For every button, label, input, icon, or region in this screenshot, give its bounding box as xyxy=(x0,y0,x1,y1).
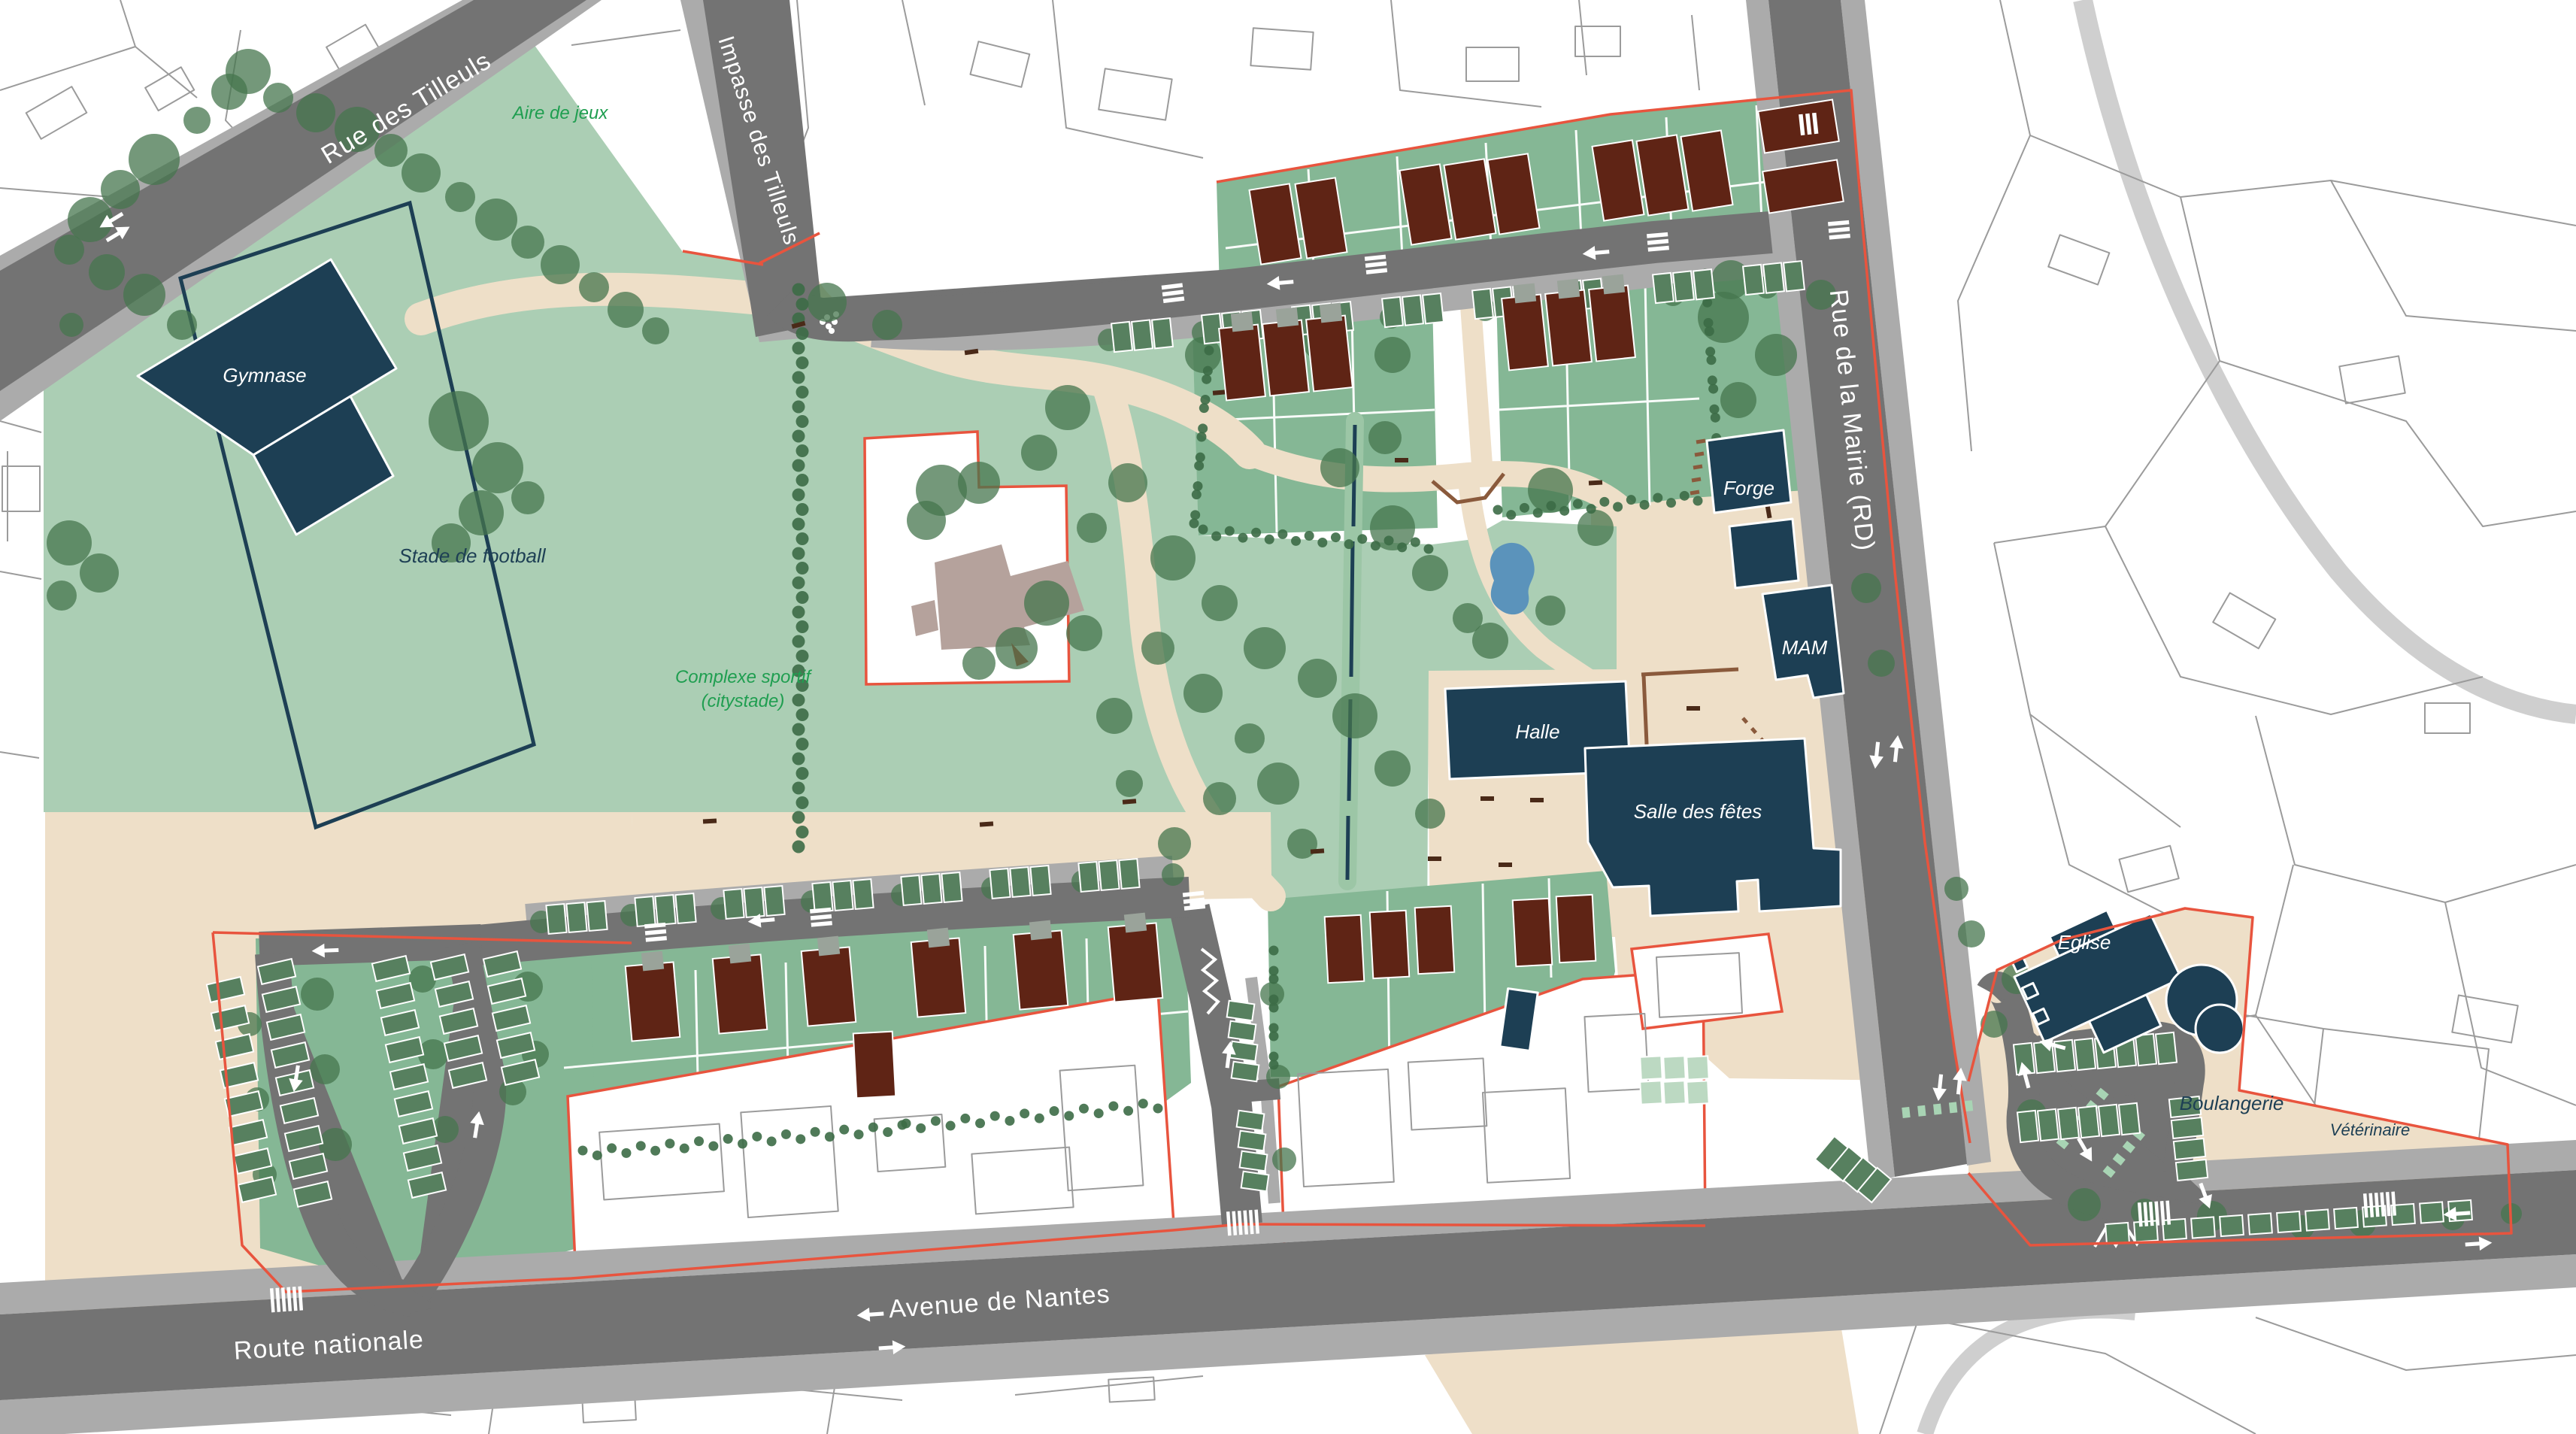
hedge-shrub xyxy=(796,298,809,311)
parking-stall xyxy=(675,893,696,923)
bush xyxy=(1203,366,1213,376)
bush xyxy=(854,1129,864,1139)
bench xyxy=(1499,863,1512,867)
bush xyxy=(1653,493,1662,503)
bush xyxy=(621,1148,631,1158)
parking-stall xyxy=(2017,1111,2038,1142)
bush xyxy=(1190,510,1200,520)
bush xyxy=(1123,1106,1133,1116)
hedge-shrub xyxy=(796,650,809,662)
traffic-arrow xyxy=(970,241,999,259)
bench xyxy=(1395,458,1408,462)
parking-stall xyxy=(566,902,586,932)
bush xyxy=(708,1141,718,1151)
tree xyxy=(1203,782,1236,815)
bush xyxy=(694,1136,704,1146)
tree xyxy=(1298,659,1337,698)
hedge-shrub xyxy=(792,401,805,414)
tree xyxy=(183,107,211,134)
parking-stall xyxy=(2156,1032,2177,1064)
driveway xyxy=(1029,920,1052,941)
tree xyxy=(445,182,475,212)
tree xyxy=(429,391,489,451)
hedge-shrub xyxy=(792,489,805,502)
bush xyxy=(1493,505,1503,515)
parking-stall xyxy=(1423,293,1444,323)
bush xyxy=(1269,1003,1279,1013)
bush xyxy=(1020,1108,1029,1118)
parking-stall xyxy=(2220,1215,2244,1236)
bush xyxy=(1153,1104,1163,1114)
crosswalk xyxy=(1647,232,1669,252)
parking-stall xyxy=(764,886,784,916)
bush xyxy=(1238,533,1247,543)
bush xyxy=(1108,1101,1118,1111)
bush xyxy=(1710,405,1720,414)
tree xyxy=(1720,382,1756,418)
tree xyxy=(459,490,504,535)
tree xyxy=(1021,435,1057,471)
tree xyxy=(579,272,609,302)
hedge-shrub xyxy=(792,606,805,619)
tree xyxy=(1257,762,1299,805)
hedge-shrub xyxy=(792,371,805,384)
bush xyxy=(1371,541,1380,550)
tree xyxy=(167,310,197,340)
hedge-shrub xyxy=(792,782,805,795)
house xyxy=(626,962,680,1041)
bush xyxy=(1533,508,1543,518)
place-label-eglise: Eglise xyxy=(2058,931,2111,953)
bush xyxy=(1666,498,1676,508)
hedge-shrub xyxy=(796,327,809,340)
parking-stall xyxy=(2248,1213,2272,1234)
tree xyxy=(1108,463,1147,502)
house xyxy=(853,1032,896,1099)
bush xyxy=(752,1132,762,1141)
parking-stall xyxy=(1653,273,1674,303)
bush xyxy=(1520,503,1529,513)
tree xyxy=(872,310,902,340)
hedge-shrub xyxy=(792,694,805,707)
tree xyxy=(2068,1188,2101,1221)
hedge-shrub xyxy=(792,342,805,355)
hedge-shrub xyxy=(792,841,805,853)
hedge-shrub xyxy=(796,708,809,721)
place-label-aire-de-jeux: Aire de jeux xyxy=(511,103,609,123)
bench xyxy=(1480,796,1494,801)
hedge-shrub xyxy=(796,356,809,369)
parking-stall xyxy=(1132,320,1153,350)
hedge-shrub xyxy=(796,562,809,575)
masterplan-map: Rue des Tilleuls Impasse des Tilleuls Ru… xyxy=(0,0,2576,1434)
tree xyxy=(1374,337,1411,373)
parking-stall xyxy=(1673,271,1694,301)
bush xyxy=(1265,535,1274,544)
bush xyxy=(1704,318,1714,328)
bush xyxy=(1269,946,1279,956)
bush xyxy=(1251,528,1261,538)
bush xyxy=(1205,346,1214,356)
crosswalk xyxy=(1799,113,1818,135)
place-label-forge: Forge xyxy=(1723,477,1774,499)
house xyxy=(911,938,965,1017)
bush xyxy=(1196,453,1205,462)
house xyxy=(1014,930,1068,1009)
tree xyxy=(958,462,1000,504)
hedge-shrub xyxy=(792,635,805,648)
bush xyxy=(636,1141,646,1151)
tree xyxy=(1944,877,1968,901)
garden-plot xyxy=(1663,1056,1686,1079)
tree xyxy=(1868,650,1895,677)
bush xyxy=(1269,975,1279,984)
tree xyxy=(296,93,335,132)
bush xyxy=(1198,423,1208,433)
tree xyxy=(1024,581,1069,626)
bush xyxy=(607,1143,617,1153)
house xyxy=(1502,295,1548,371)
tree xyxy=(1266,1065,1290,1089)
tree xyxy=(1202,585,1238,621)
tree xyxy=(996,627,1038,669)
parking-stall xyxy=(1240,1151,1268,1172)
bush xyxy=(1305,531,1314,541)
hedge-shrub xyxy=(792,577,805,590)
tree xyxy=(1077,513,1107,543)
parking-stall xyxy=(2074,1038,2096,1070)
place-label-veterinaire: Vétérinaire xyxy=(2330,1120,2410,1139)
bush xyxy=(1190,519,1199,529)
tree xyxy=(1851,573,1881,603)
tree xyxy=(54,235,84,265)
tree xyxy=(129,134,180,185)
bush xyxy=(1192,490,1202,499)
parking-stall xyxy=(586,901,607,931)
parking-stall xyxy=(1743,265,1764,295)
bush xyxy=(578,1146,588,1156)
tree xyxy=(80,553,119,593)
bush xyxy=(811,1127,820,1137)
driveway xyxy=(1602,274,1625,295)
bush xyxy=(1587,504,1596,514)
tree xyxy=(1141,632,1174,665)
tree xyxy=(541,245,580,284)
hedge-shrub xyxy=(796,767,809,780)
parking-stall xyxy=(1229,1021,1256,1041)
bush xyxy=(1005,1116,1014,1126)
bush xyxy=(1225,526,1235,536)
tree xyxy=(101,170,140,209)
driveway xyxy=(1276,308,1299,328)
house xyxy=(1306,316,1353,392)
tree xyxy=(1272,1148,1296,1172)
hedge-shrub xyxy=(796,532,809,545)
parking-stall xyxy=(1237,1111,1265,1131)
bush xyxy=(1708,375,1717,385)
bush xyxy=(1680,491,1690,501)
bush xyxy=(1357,534,1367,544)
bush xyxy=(1079,1104,1089,1114)
parking-stall xyxy=(546,904,566,934)
tree xyxy=(475,199,517,241)
bush xyxy=(946,1121,956,1131)
tree xyxy=(1958,920,1985,947)
parking-stall xyxy=(2420,1202,2444,1223)
bush xyxy=(767,1136,777,1146)
tree xyxy=(310,1054,340,1084)
hedge-shrub xyxy=(792,723,805,736)
parking-stall xyxy=(1402,295,1423,325)
bush xyxy=(1194,461,1204,471)
parking-stall xyxy=(941,872,962,902)
hedge-shrub xyxy=(796,415,809,428)
house xyxy=(1370,911,1410,978)
tree xyxy=(123,274,165,316)
tree xyxy=(1368,421,1402,454)
masterplan-svg: Rue des Tilleuls Impasse des Tilleuls Ru… xyxy=(0,0,2576,1434)
parking-stall xyxy=(1382,297,1403,327)
bush xyxy=(902,1119,911,1129)
bush xyxy=(1277,529,1287,539)
forge-building xyxy=(1707,430,1791,513)
crosswalk xyxy=(1162,283,1185,303)
bush xyxy=(1599,497,1609,507)
bush xyxy=(1202,374,1211,384)
house xyxy=(1513,899,1553,966)
crosswalk xyxy=(1183,891,1205,911)
bench xyxy=(1589,481,1602,486)
hedge-shrub xyxy=(792,547,805,560)
parking-stall xyxy=(1078,862,1099,892)
place-label-salle-des-fetes: Salle des fêtes xyxy=(1634,800,1762,823)
bush xyxy=(665,1138,674,1148)
bush xyxy=(1269,1060,1279,1070)
parking-stall xyxy=(1784,261,1805,291)
bush xyxy=(1559,506,1569,516)
tree xyxy=(1116,770,1143,797)
tree xyxy=(962,647,996,680)
driveway xyxy=(927,928,950,948)
tree xyxy=(263,83,293,113)
parking-stall xyxy=(2058,1108,2079,1139)
bush xyxy=(1693,496,1703,506)
house xyxy=(1108,923,1162,1002)
bush xyxy=(796,1134,805,1144)
hedge-shrub xyxy=(792,753,805,766)
parking-stall xyxy=(2078,1106,2099,1138)
parking-stall xyxy=(723,889,744,919)
tree xyxy=(1287,829,1317,859)
bush xyxy=(1064,1111,1074,1120)
tree xyxy=(1066,615,1102,651)
bush xyxy=(1050,1106,1059,1116)
driveway xyxy=(817,936,840,957)
bush xyxy=(1705,347,1715,356)
tree xyxy=(1183,674,1223,713)
place-label-complexe-2: (citystade) xyxy=(702,691,785,711)
house xyxy=(1262,320,1309,396)
parking-stall xyxy=(832,881,853,911)
garden-plot xyxy=(1640,1056,1662,1079)
bush xyxy=(738,1139,747,1149)
parking-stall xyxy=(2277,1211,2301,1232)
bush xyxy=(1201,395,1211,405)
bush xyxy=(1411,537,1420,547)
house xyxy=(1415,906,1455,974)
bush xyxy=(1211,532,1221,541)
tree xyxy=(89,254,125,290)
hedge-shrub xyxy=(796,591,809,604)
tree xyxy=(1472,623,1508,659)
tree xyxy=(1045,385,1090,430)
bench xyxy=(1428,856,1441,861)
hedge-shrub xyxy=(792,811,805,824)
bush xyxy=(680,1144,689,1154)
house xyxy=(1325,915,1365,983)
parking-stall xyxy=(2162,1219,2187,1240)
bush xyxy=(1291,536,1301,546)
driveway xyxy=(641,951,664,972)
parking-stall xyxy=(2119,1103,2140,1135)
tree xyxy=(642,317,669,344)
hedge-shrub xyxy=(792,430,805,443)
tree xyxy=(511,226,544,259)
parking-stall xyxy=(1030,866,1050,896)
parking-stall xyxy=(1241,1172,1269,1192)
bench xyxy=(1687,706,1700,711)
tree xyxy=(608,292,644,328)
bush xyxy=(1506,510,1516,520)
parking-stall xyxy=(2176,1160,2208,1181)
parking-stall xyxy=(2105,1223,2129,1244)
crosswalk xyxy=(644,923,667,942)
traffic-arrow-head xyxy=(970,243,984,259)
tree xyxy=(402,153,441,193)
tree xyxy=(1158,827,1191,860)
bush xyxy=(1424,544,1434,554)
bush xyxy=(1035,1114,1044,1123)
garden-plot xyxy=(1687,1056,1709,1079)
tree xyxy=(211,74,247,110)
house xyxy=(713,954,767,1033)
crosswalk xyxy=(1365,255,1387,274)
parking-stall xyxy=(1472,289,1493,319)
bush xyxy=(1193,481,1203,491)
bush xyxy=(650,1146,660,1156)
hedge-shrub xyxy=(792,283,805,296)
house xyxy=(1556,895,1596,963)
place-label-halle: Halle xyxy=(1515,720,1559,743)
place-label-complexe-1: Complexe sportif xyxy=(675,667,812,687)
parking-stall xyxy=(2174,1138,2205,1160)
parking-stall xyxy=(1693,269,1714,299)
house xyxy=(1589,286,1635,362)
bush xyxy=(1138,1099,1148,1108)
tree xyxy=(907,501,946,540)
bush xyxy=(1317,538,1327,547)
parking-stall xyxy=(635,896,655,926)
tree xyxy=(1374,750,1411,787)
place-label-gymnase: Gymnase xyxy=(223,364,306,387)
hedge-shrub xyxy=(796,386,809,399)
parking-stall xyxy=(989,869,1010,899)
parking-stall xyxy=(2038,1109,2059,1141)
bush xyxy=(1573,499,1583,509)
bush xyxy=(960,1114,970,1123)
bush xyxy=(723,1134,733,1144)
parking-stall xyxy=(1119,859,1139,889)
bush xyxy=(1397,542,1407,552)
bush xyxy=(1626,495,1636,505)
parking-stall xyxy=(1099,860,1119,890)
parking-stall xyxy=(921,874,941,904)
driveway xyxy=(1514,283,1536,304)
tree xyxy=(1755,334,1797,376)
tree xyxy=(511,481,544,514)
driveway xyxy=(1320,303,1342,323)
bench xyxy=(980,821,993,826)
driveway xyxy=(1557,279,1580,299)
bush xyxy=(1640,500,1650,510)
hedge-shrub xyxy=(796,503,809,516)
house xyxy=(1219,325,1265,401)
bush xyxy=(825,1132,835,1141)
parking-stall xyxy=(744,887,764,917)
hedge-shrub xyxy=(796,444,809,457)
bush xyxy=(868,1123,878,1132)
bush xyxy=(1613,502,1623,512)
parking-stall xyxy=(1227,1001,1255,1021)
tree xyxy=(1150,535,1196,581)
bush xyxy=(931,1116,941,1126)
street-tree xyxy=(1162,863,1184,886)
tree xyxy=(1235,723,1265,753)
tree xyxy=(472,442,523,493)
tree xyxy=(47,520,92,565)
tree xyxy=(47,581,77,611)
garden-plot xyxy=(1640,1081,1662,1104)
parking-stall xyxy=(901,875,921,905)
pond xyxy=(1490,543,1535,614)
parking-stall xyxy=(2171,1117,2203,1138)
hedge-shrub xyxy=(792,459,805,472)
tree xyxy=(59,313,83,337)
bush xyxy=(975,1118,985,1128)
bush xyxy=(990,1111,1000,1121)
tree xyxy=(301,978,334,1011)
bush xyxy=(1546,501,1556,511)
bush xyxy=(1197,432,1207,442)
bush xyxy=(592,1151,602,1160)
tree xyxy=(1320,448,1359,487)
bush xyxy=(916,1123,926,1133)
hedge-shrub xyxy=(796,738,809,750)
garden-plot xyxy=(1687,1081,1709,1104)
hedge-shrub xyxy=(792,518,805,531)
place-label-stade: Stade de football xyxy=(399,544,546,567)
hedge-shrub xyxy=(796,826,809,838)
bench xyxy=(1530,798,1544,802)
parking-stall xyxy=(2334,1208,2358,1229)
bush xyxy=(1331,532,1341,542)
tree xyxy=(1412,555,1448,591)
parking-stall xyxy=(1763,262,1784,293)
crosswalk xyxy=(810,908,832,927)
bush xyxy=(839,1125,849,1135)
parking-stall xyxy=(1152,318,1173,348)
place-label-mam: MAM xyxy=(1782,636,1828,659)
